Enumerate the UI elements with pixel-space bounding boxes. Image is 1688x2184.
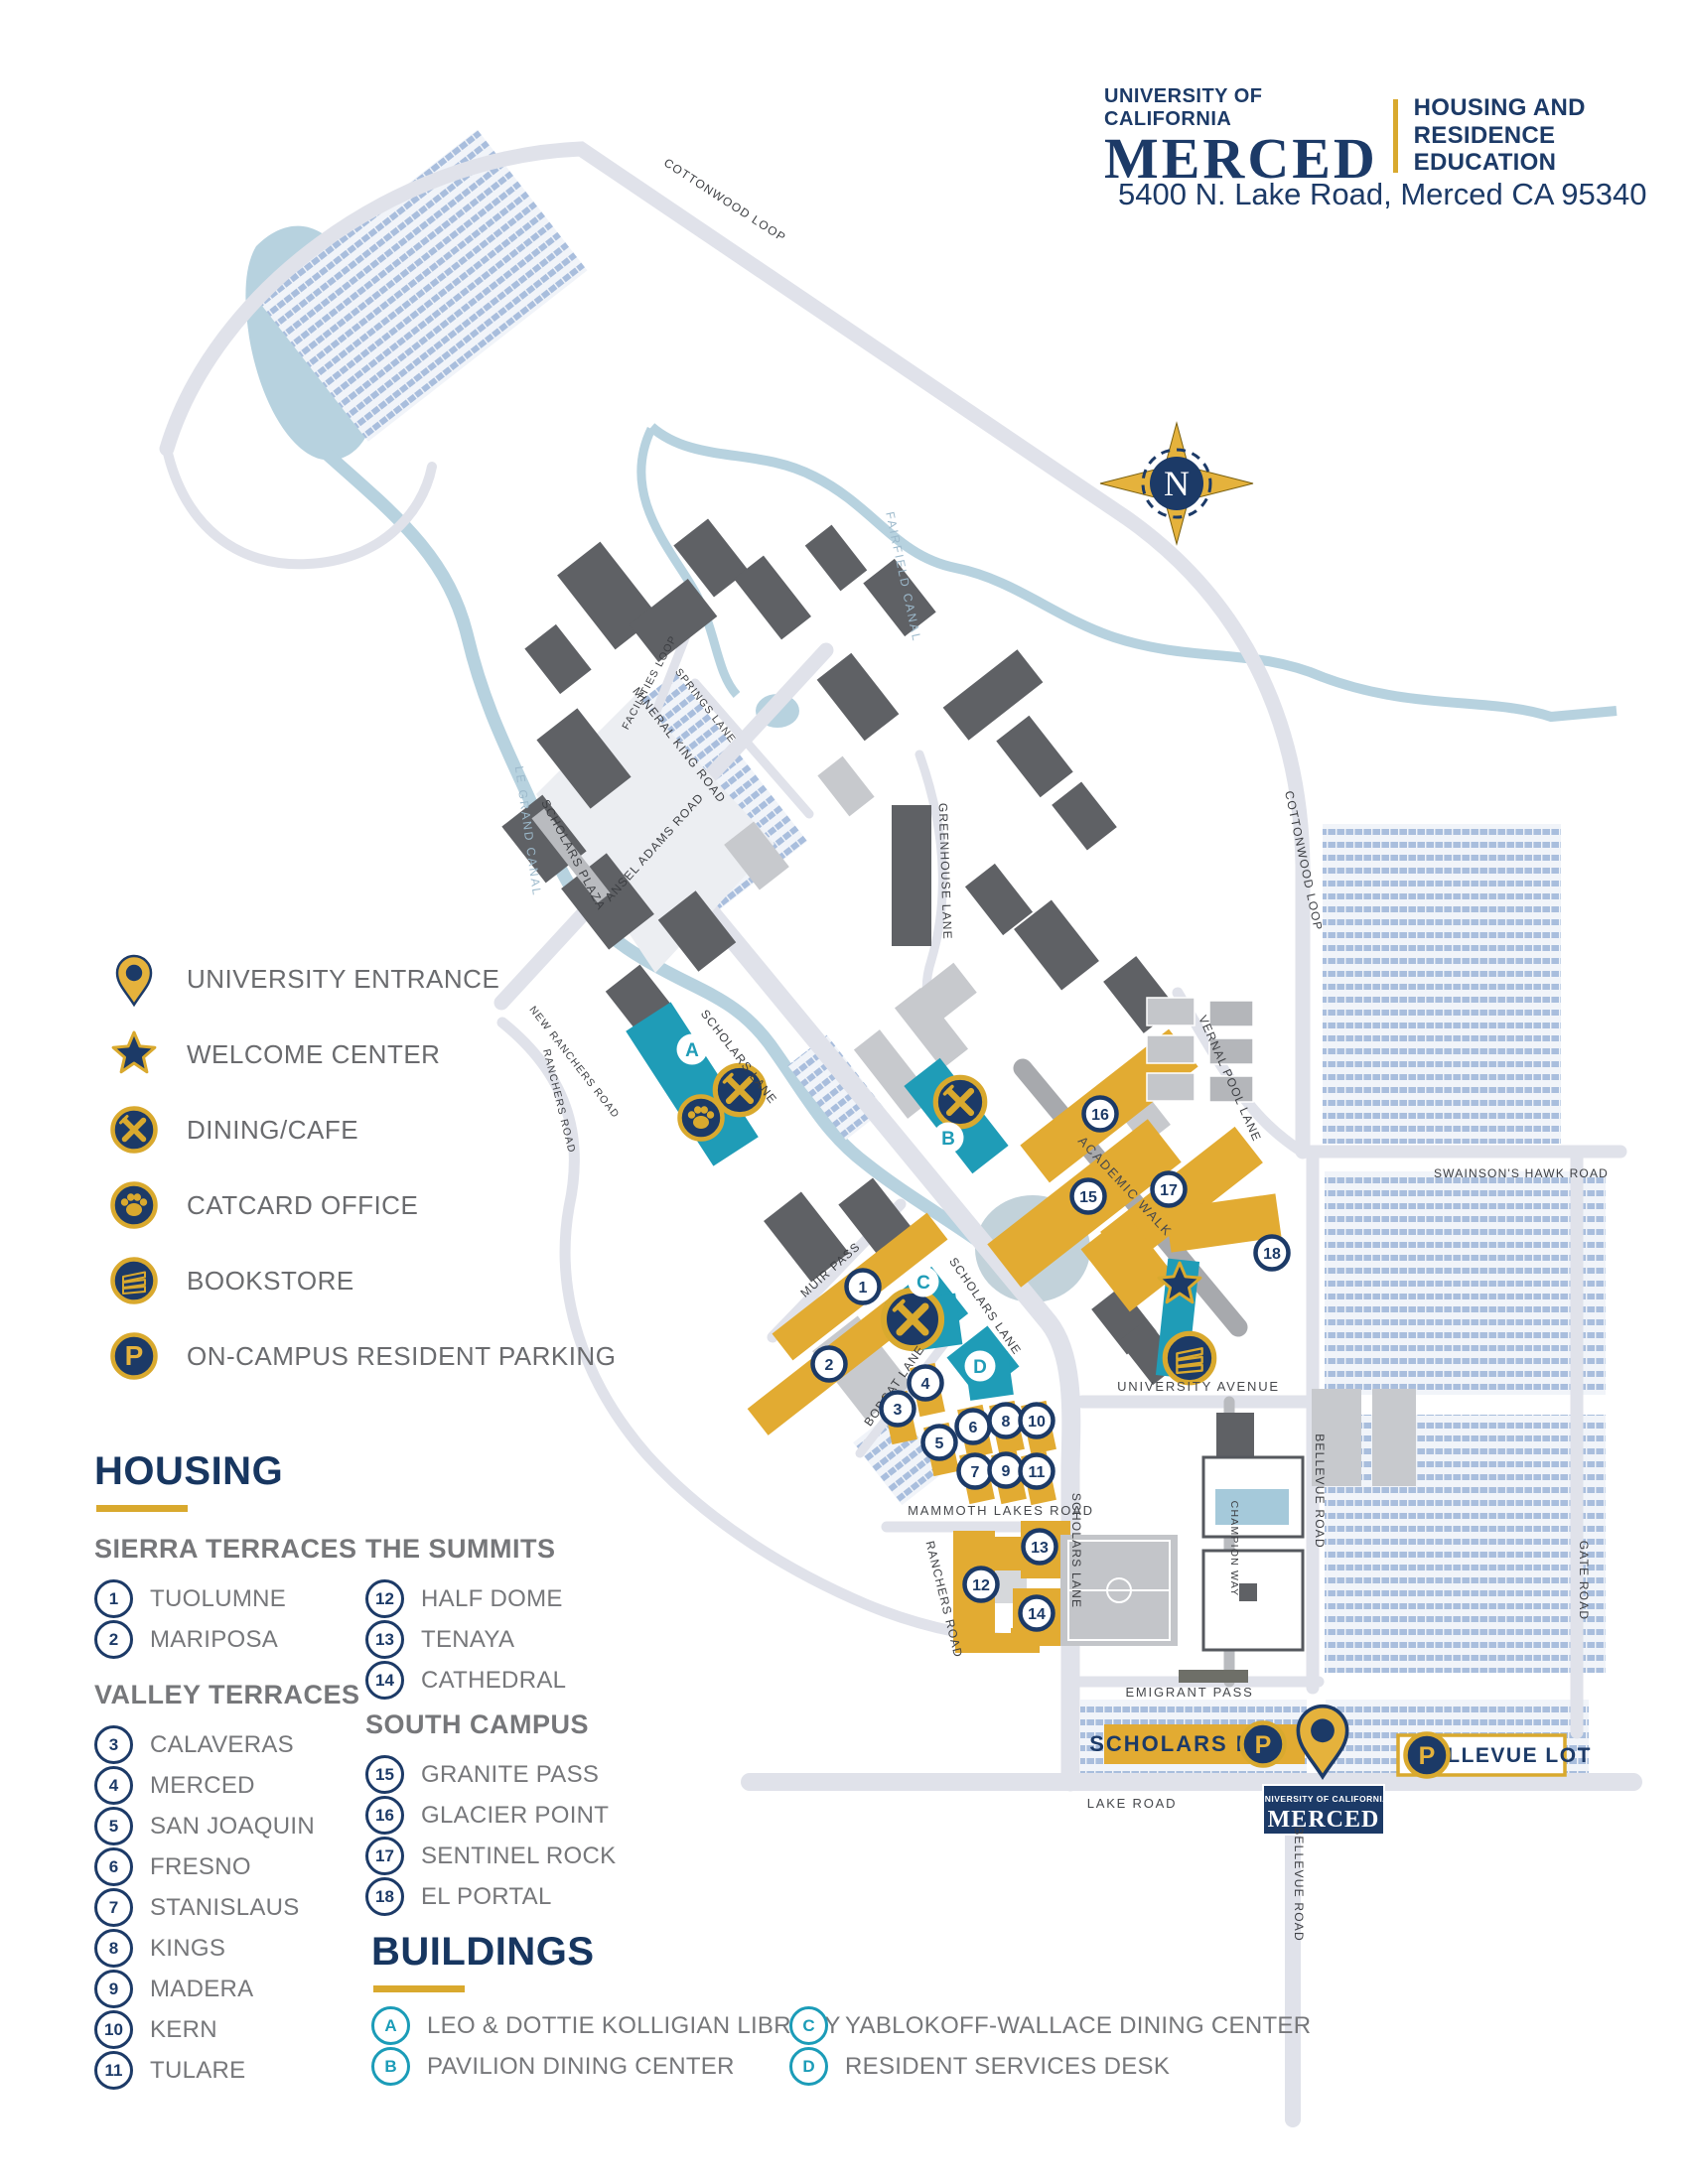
road-label: UNIVERSITY AVENUE <box>1117 1379 1280 1394</box>
svg-text:1: 1 <box>859 1280 868 1297</box>
svg-text:6: 6 <box>969 1420 978 1436</box>
dining-icon <box>935 1077 984 1126</box>
svg-text:D: D <box>973 1357 987 1378</box>
housing-title: HOUSING <box>94 1449 283 1494</box>
housing-item: 9MADERA <box>94 1969 360 2009</box>
campus-map-page: SCHOLARS LOT P BELLEVUE LOT P UNIVERSITY… <box>0 0 1688 2184</box>
svg-text:B: B <box>941 1129 955 1150</box>
logo-divider <box>1393 99 1398 173</box>
svg-text:A: A <box>685 1040 699 1061</box>
svg-text:14: 14 <box>1028 1606 1046 1623</box>
item-label: CALAVERAS <box>150 1731 294 1759</box>
map-marker-C: C <box>909 1267 939 1297</box>
item-letter: C <box>789 2006 828 2045</box>
item-letter: D <box>789 2047 828 2086</box>
legend-item: P ON-CAMPUS RESIDENT PARKING <box>103 1318 616 1394</box>
item-label: STANISLAUS <box>150 1894 300 1922</box>
legend-item: WELCOME CENTER <box>103 1017 616 1092</box>
svg-text:12: 12 <box>972 1577 990 1594</box>
item-number: 14 <box>365 1661 404 1700</box>
item-label: CATHEDRAL <box>421 1667 566 1695</box>
item-label: TENAYA <box>421 1626 514 1654</box>
scholars-lot-p: P <box>1255 1731 1272 1759</box>
item-label: KINGS <box>150 1935 225 1963</box>
map-marker-B: B <box>933 1123 964 1154</box>
item-label: GRANITE PASS <box>421 1761 599 1789</box>
uc-merced-logo: UNIVERSITY OF CALIFORNIA MERCED <box>1104 85 1379 186</box>
housing-item: 15GRANITE PASS <box>365 1754 616 1795</box>
road-label: BELLEVUE ROAD <box>1292 1827 1306 1942</box>
svg-text:13: 13 <box>1031 1540 1049 1557</box>
housing-item: 13TENAYA <box>365 1619 566 1660</box>
brand-header: UNIVERSITY OF CALIFORNIA MERCED HOUSING … <box>1104 85 1688 186</box>
map-marker-14: 14 <box>1021 1597 1054 1630</box>
map-marker-15: 15 <box>1072 1180 1105 1213</box>
item-number: 4 <box>94 1766 133 1805</box>
map-marker-16: 16 <box>1084 1098 1117 1131</box>
map-marker-17: 17 <box>1153 1173 1186 1206</box>
department-name: HOUSING AND RESIDENCE EDUCATION <box>1414 94 1688 177</box>
bellevue-lot-p: P <box>1419 1742 1436 1770</box>
housing-item: 2 MARIPOSA <box>94 1619 357 1660</box>
svg-text:9: 9 <box>1002 1463 1011 1480</box>
item-number: 3 <box>94 1725 133 1764</box>
entrance-sign-line2: MERCED <box>1268 1807 1380 1833</box>
road-label: COTTONWOOD LOOP <box>661 156 788 245</box>
item-number: 10 <box>94 2010 133 2049</box>
svg-text:5: 5 <box>935 1435 944 1452</box>
item-label: HALF DOME <box>421 1585 563 1613</box>
item-label: YABLOKOFF-WALLACE DINING CENTER <box>845 2012 1311 2040</box>
item-label: SENTINEL ROCK <box>421 1843 616 1870</box>
legend-label: BOOKSTORE <box>187 1266 354 1297</box>
legend-item: DINING/CAFE <box>103 1092 616 1167</box>
legend-item: UNIVERSITY ENTRANCE <box>103 941 616 1017</box>
housing-title-underline <box>96 1505 188 1512</box>
svg-text:16: 16 <box>1091 1107 1109 1124</box>
paw-icon <box>680 1097 723 1140</box>
section-south-campus: SOUTH CAMPUS 15GRANITE PASS 16GLACIER PO… <box>365 1709 616 1917</box>
svg-text:7: 7 <box>971 1464 980 1481</box>
item-number: 18 <box>365 1877 404 1916</box>
buildings-title-underline <box>373 1985 465 1992</box>
item-letter: A <box>371 2006 410 2045</box>
section-name: SIERRA TERRACES <box>94 1534 357 1565</box>
housing-item: 11TULARE <box>94 2050 360 2091</box>
swimming-pool <box>1215 1489 1289 1525</box>
map-marker-6: 6 <box>957 1411 990 1443</box>
housing-item: 12HALF DOME <box>365 1578 566 1619</box>
map-marker-8: 8 <box>990 1405 1023 1437</box>
item-label: RESIDENT SERVICES DESK <box>845 2053 1170 2081</box>
item-label: MARIPOSA <box>150 1626 278 1654</box>
item-label: KERN <box>150 2016 217 2044</box>
housing-item: 10KERN <box>94 2009 360 2050</box>
map-marker-2: 2 <box>813 1348 846 1381</box>
item-label: SAN JOAQUIN <box>150 1813 315 1841</box>
item-label: TUOLUMNE <box>150 1585 286 1613</box>
map-marker-7: 7 <box>959 1455 992 1488</box>
map-marker-11: 11 <box>1021 1455 1054 1488</box>
section-name: SOUTH CAMPUS <box>365 1709 616 1740</box>
item-label: EL PORTAL <box>421 1883 552 1911</box>
item-number: 15 <box>365 1755 404 1794</box>
section-name: VALLEY TERRACES <box>94 1680 360 1710</box>
item-number: 11 <box>94 2051 133 2090</box>
map-marker-9: 9 <box>990 1454 1023 1487</box>
welcome-star-icon <box>103 1028 165 1080</box>
housing-item: 14CATHEDRAL <box>365 1660 566 1701</box>
map-marker-A: A <box>677 1034 708 1065</box>
section-valley-terraces: VALLEY TERRACES 3CALAVERAS 4MERCED 5SAN … <box>94 1680 360 2091</box>
building-item: BPAVILION DINING CENTER <box>371 2046 841 2087</box>
dept-line1: HOUSING AND <box>1414 94 1688 122</box>
road-label: EMIGRANT PASS <box>1125 1685 1253 1700</box>
item-number: 9 <box>94 1970 133 2008</box>
item-label: MERCED <box>150 1772 255 1800</box>
legend-label: UNIVERSITY ENTRANCE <box>187 964 499 995</box>
section-the-summits: THE SUMMITS 12HALF DOME 13TENAYA 14CATHE… <box>365 1534 566 1701</box>
housing-item: 5SAN JOAQUIN <box>94 1806 360 1846</box>
legend-item: CATCARD OFFICE <box>103 1167 616 1243</box>
item-number: 8 <box>94 1929 133 1968</box>
dining-icon <box>103 1104 165 1156</box>
item-letter: B <box>371 2047 410 2086</box>
svg-text:10: 10 <box>1028 1414 1046 1431</box>
road-label: CHAMPION WAY <box>1228 1501 1240 1597</box>
buildings-title: BUILDINGS <box>371 1930 595 1975</box>
svg-text:15: 15 <box>1079 1189 1097 1206</box>
legend-label: CATCARD OFFICE <box>187 1190 418 1221</box>
road-label: BELLEVUE ROAD <box>1313 1433 1327 1549</box>
item-label: TULARE <box>150 2057 246 2085</box>
road-label: GATE ROAD <box>1577 1541 1591 1621</box>
campus-address: 5400 N. Lake Road, Merced CA 95340 <box>1118 177 1647 212</box>
item-number: 17 <box>365 1837 404 1875</box>
entrance-sign-line1: UNIVERSITY OF CALIFORNIA <box>1258 1794 1389 1804</box>
housing-item: 7STANISLAUS <box>94 1887 360 1928</box>
item-number: 7 <box>94 1888 133 1927</box>
map-legend: UNIVERSITY ENTRANCE WELCOME CENTER DININ… <box>103 941 616 1394</box>
building-item: ALEO & DOTTIE KOLLIGIAN LIBRARY <box>371 2005 841 2046</box>
road-label: LAKE ROAD <box>1087 1796 1178 1811</box>
housing-item: 18EL PORTAL <box>365 1876 616 1917</box>
map-marker-5: 5 <box>923 1427 956 1459</box>
svg-text:18: 18 <box>1263 1246 1281 1263</box>
item-label: MADERA <box>150 1976 253 2003</box>
legend-label: DINING/CAFE <box>187 1115 358 1146</box>
legend-label: ON-CAMPUS RESIDENT PARKING <box>187 1341 616 1372</box>
buildings-column-1: ALEO & DOTTIE KOLLIGIAN LIBRARY BPAVILIO… <box>371 2005 841 2087</box>
road-label: SWAINSON'S HAWK ROAD <box>1434 1166 1609 1180</box>
road-label: MAMMOTH LAKES ROAD <box>908 1503 1094 1518</box>
map-marker-18: 18 <box>1256 1237 1289 1270</box>
paw-icon <box>103 1179 165 1231</box>
item-number: 13 <box>365 1620 404 1659</box>
housing-item: 16GLACIER POINT <box>365 1795 616 1836</box>
svg-text:17: 17 <box>1160 1182 1178 1199</box>
item-number: 16 <box>365 1796 404 1835</box>
svg-text:C: C <box>916 1273 930 1294</box>
item-label: PAVILION DINING CENTER <box>427 2053 735 2081</box>
entrance-pin-icon <box>103 951 165 1007</box>
item-label: GLACIER POINT <box>421 1802 609 1830</box>
map-marker-D: D <box>965 1351 996 1382</box>
housing-item: 6FRESNO <box>94 1846 360 1887</box>
dining-icon <box>884 1291 941 1348</box>
map-marker-3: 3 <box>882 1393 914 1426</box>
item-number: 2 <box>94 1620 133 1659</box>
item-label: LEO & DOTTIE KOLLIGIAN LIBRARY <box>427 2012 841 2040</box>
housing-item: 4MERCED <box>94 1765 360 1806</box>
item-label: FRESNO <box>150 1853 251 1881</box>
svg-text:3: 3 <box>894 1402 903 1419</box>
svg-text:4: 4 <box>921 1376 930 1393</box>
svg-text:11: 11 <box>1029 1464 1046 1481</box>
legend-label: WELCOME CENTER <box>187 1039 440 1070</box>
parking-icon: P <box>103 1330 165 1382</box>
map-marker-10: 10 <box>1021 1405 1054 1437</box>
housing-item: 1 TUOLUMNE <box>94 1578 357 1619</box>
building-item: DRESIDENT SERVICES DESK <box>789 2046 1311 2087</box>
dept-line2: RESIDENCE EDUCATION <box>1414 122 1688 177</box>
item-number: 1 <box>94 1579 133 1618</box>
books-icon <box>1165 1333 1213 1382</box>
legend-item: BOOKSTORE <box>103 1243 616 1318</box>
logo-line1: UNIVERSITY OF CALIFORNIA <box>1104 85 1379 131</box>
map-marker-1: 1 <box>847 1271 880 1303</box>
housing-item: 17SENTINEL ROCK <box>365 1836 616 1876</box>
svg-text:2: 2 <box>825 1357 834 1374</box>
building-item: CYABLOKOFF-WALLACE DINING CENTER <box>789 2005 1311 2046</box>
map-marker-13: 13 <box>1024 1531 1056 1564</box>
compass-n: N <box>1164 464 1190 503</box>
books-icon <box>103 1255 165 1306</box>
parking-p-glyph: P <box>125 1340 144 1371</box>
buildings-column-2: CYABLOKOFF-WALLACE DINING CENTER DRESIDE… <box>789 2005 1311 2087</box>
item-number: 12 <box>365 1579 404 1618</box>
section-sierra-terraces: SIERRA TERRACES 1 TUOLUMNE 2 MARIPOSA <box>94 1534 357 1660</box>
map-marker-4: 4 <box>910 1367 942 1400</box>
svg-text:8: 8 <box>1002 1414 1011 1431</box>
item-number: 6 <box>94 1847 133 1886</box>
housing-item: 8KINGS <box>94 1928 360 1969</box>
item-number: 5 <box>94 1807 133 1845</box>
compass-icon: N <box>1100 423 1253 544</box>
housing-item: 3CALAVERAS <box>94 1724 360 1765</box>
section-name: THE SUMMITS <box>365 1534 566 1565</box>
map-marker-12: 12 <box>965 1569 998 1601</box>
